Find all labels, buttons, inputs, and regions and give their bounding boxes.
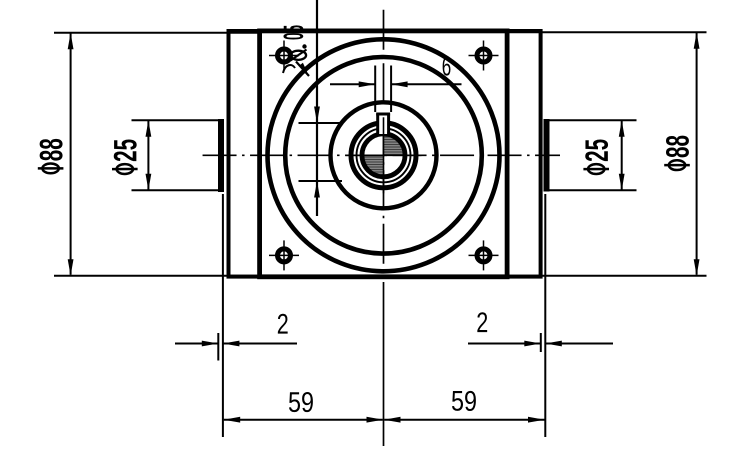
svg-text:25: 25 (579, 139, 615, 162)
svg-text:2: 2 (277, 309, 289, 341)
svg-text:88: 88 (660, 135, 696, 158)
svg-text:6: 6 (442, 51, 452, 81)
svg-text:2: 2 (476, 307, 488, 339)
svg-text:59: 59 (288, 387, 314, 419)
svg-text:88: 88 (33, 138, 69, 161)
svg-text:05: 05 (278, 25, 309, 40)
svg-text:25: 25 (107, 139, 143, 162)
svg-text:59: 59 (451, 386, 477, 418)
